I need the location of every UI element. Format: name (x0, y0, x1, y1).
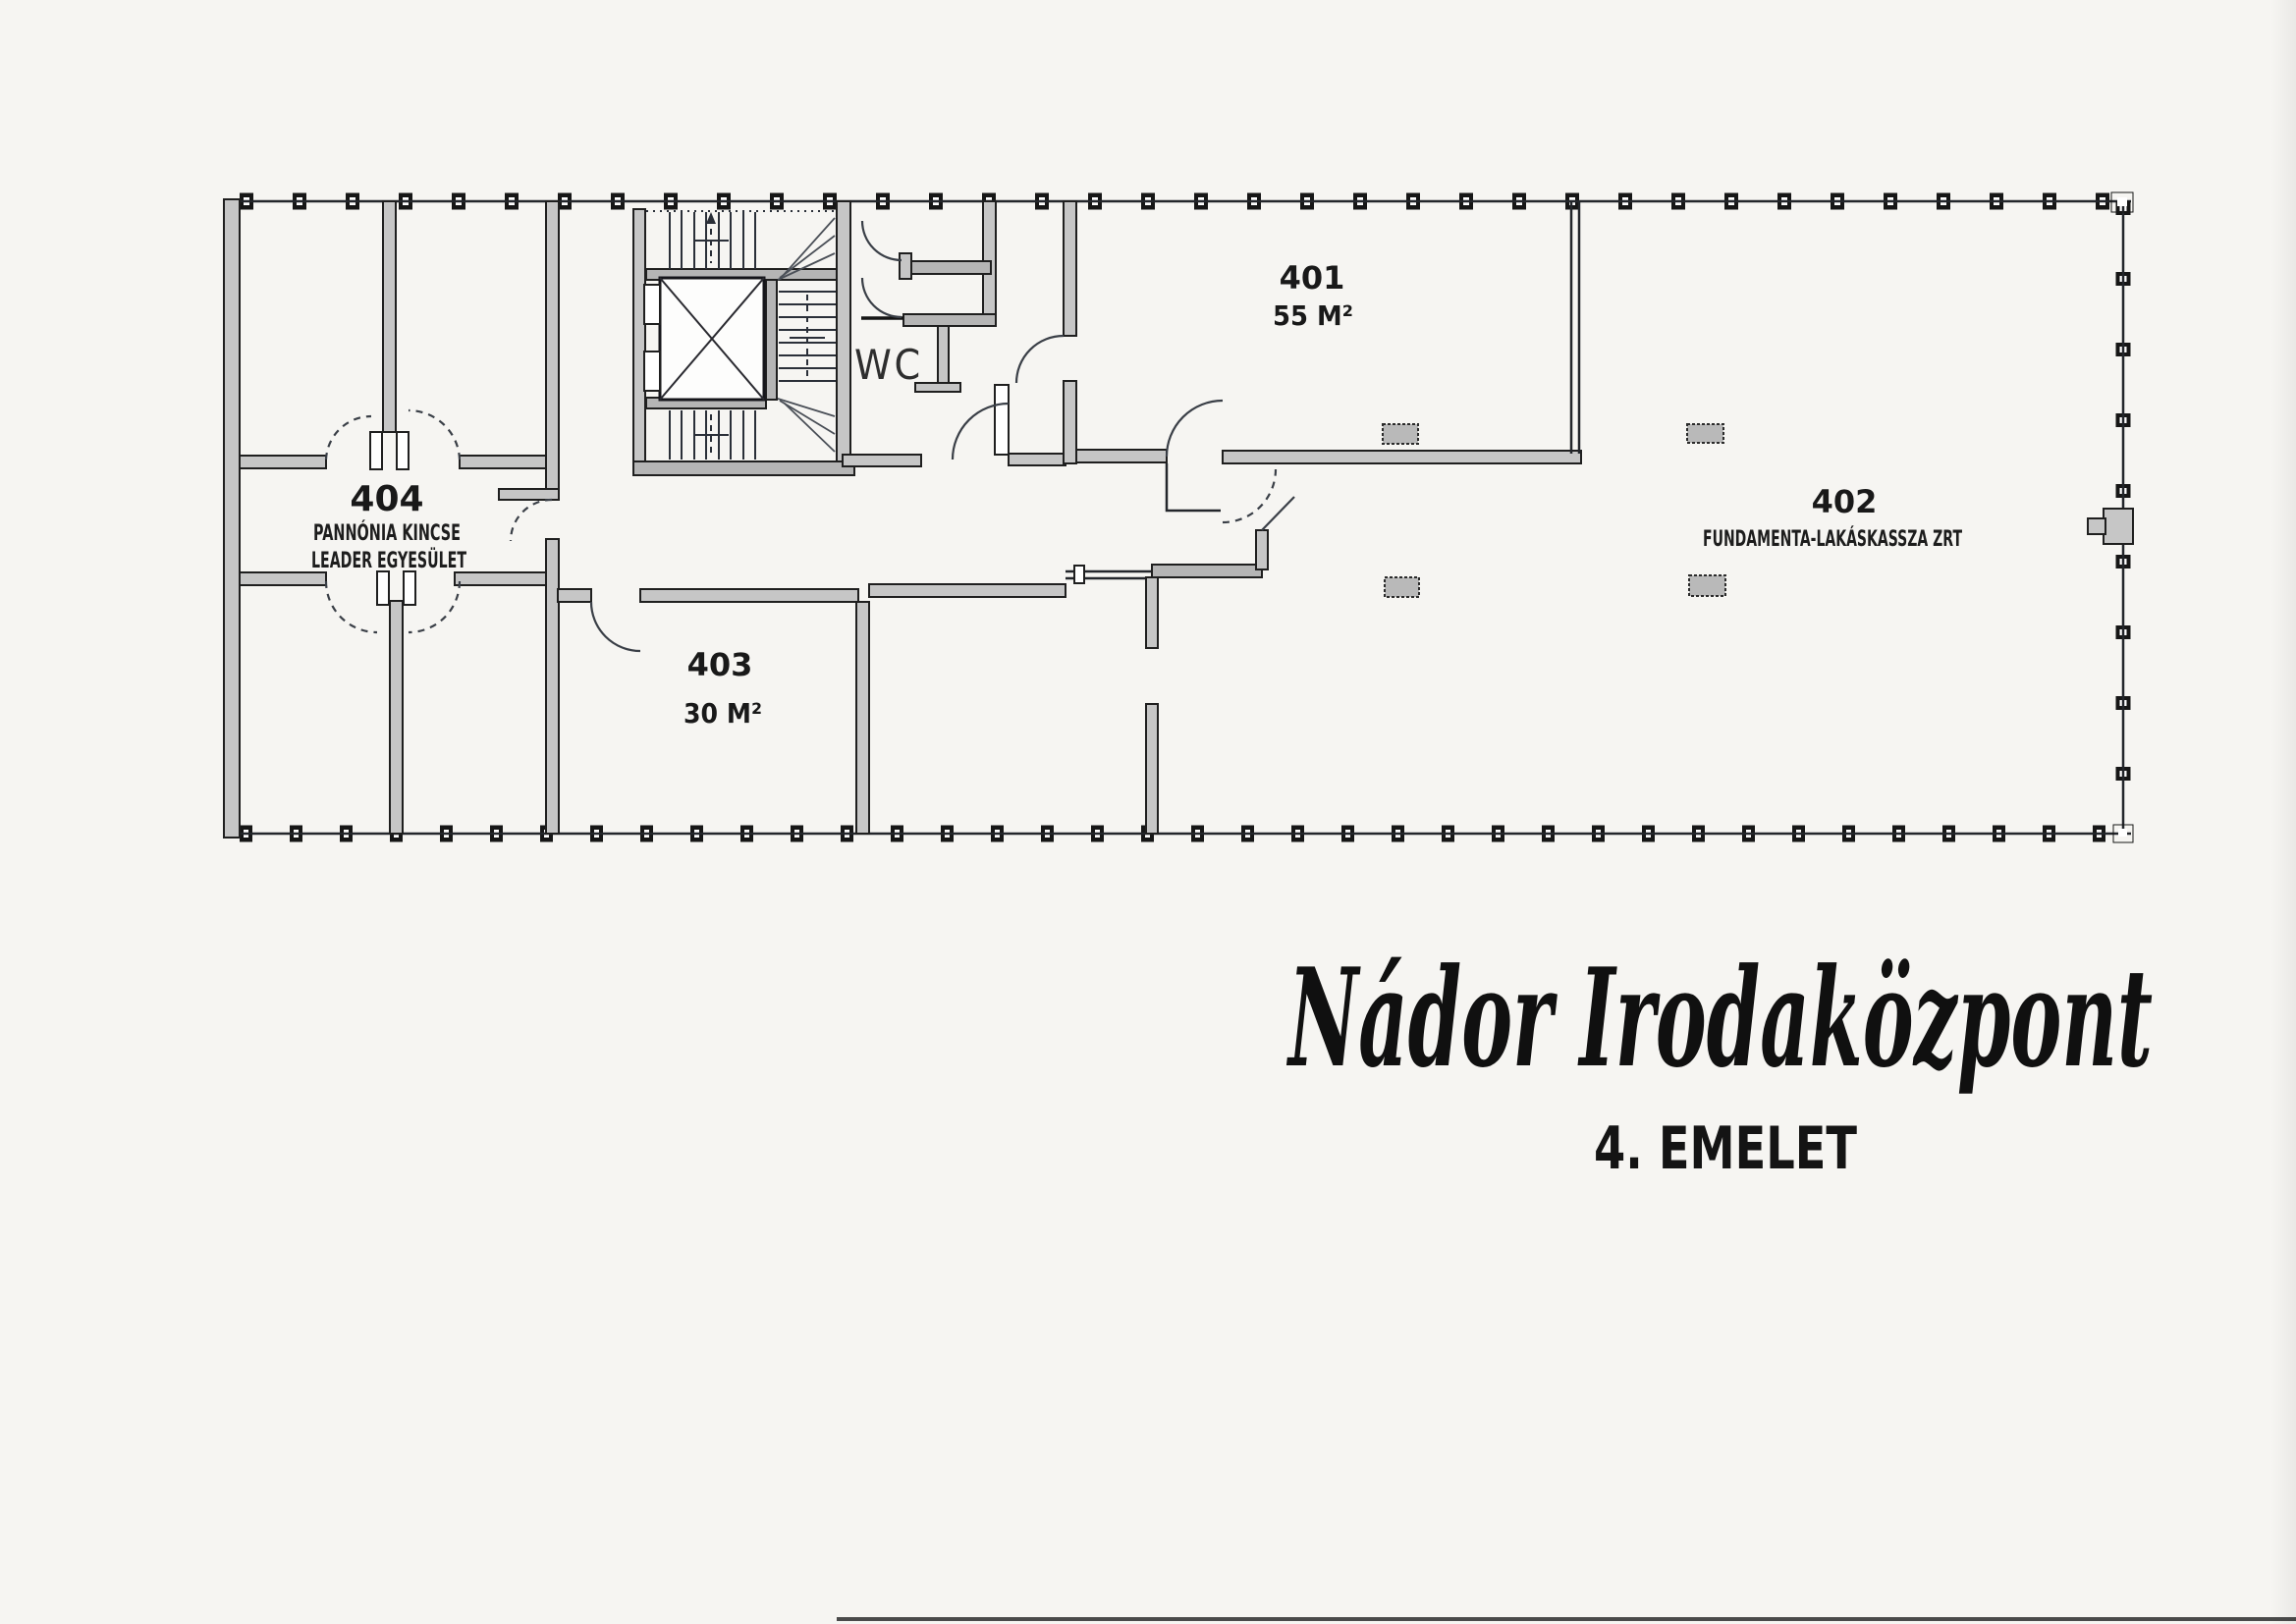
stair-west-wall (633, 209, 645, 463)
room-404-label: 404 PANNÓNIA KINCSE LEADER EGYESÜLET (311, 479, 466, 573)
stair-direction-arrow (706, 212, 716, 224)
wc-zone: WC (843, 201, 1066, 466)
room-403-label: 403 30 M² (683, 646, 762, 730)
wc-label: WC (854, 341, 923, 389)
door-arc-404-upper-left (326, 416, 371, 460)
building-title: Nádor Irodaközpont (1286, 938, 2153, 1098)
stair-south-wall (633, 461, 854, 475)
door-recess-401 (1167, 463, 1221, 511)
wall-bottom-room-divider (390, 601, 403, 834)
room-404-tenant-line2: LEADER EGYESÜLET (311, 548, 466, 573)
room-402-number: 402 (1812, 483, 1878, 520)
room-401-label: 401 55 M² (1273, 259, 1353, 332)
stair-flight-right (779, 292, 836, 381)
door-arc-404-upper-right (409, 410, 460, 460)
scanned-floor-plan-page: WC 404 PANNÓNIA K (0, 0, 2296, 1624)
stair-winder-fans (778, 218, 835, 452)
stair-east-wall (837, 201, 850, 463)
room-401-south-wall-west (1076, 450, 1167, 462)
wall-east-room-divider-upper (1146, 577, 1158, 648)
corridor-south-walls (558, 497, 1294, 834)
room-402-tenant: FUNDAMENTA-LAKÁSKASSZA ZRT (1703, 526, 1962, 552)
room-401-area: 55 M² (1273, 299, 1353, 332)
door-arc-401-west (1016, 336, 1064, 383)
room-404-number: 404 (350, 479, 423, 519)
stair-flight-bottom (670, 410, 755, 460)
stair-flight-top (670, 212, 755, 269)
door-arc-404-lower-left (326, 581, 377, 632)
door-arc-wc-anteroom (862, 221, 902, 260)
wall-top-room-divider (383, 201, 396, 432)
room-404-tenant-line1: PANNÓNIA KINCSE (313, 520, 461, 546)
room-403-number: 403 (687, 646, 753, 683)
room-402-label: 402 FUNDAMENTA-LAKÁSKASSZA ZRT (1703, 483, 1962, 552)
room-403-area: 30 M² (683, 697, 762, 730)
floor-plan-drawing: WC 404 PANNÓNIA K (0, 0, 2296, 1624)
wall-403-east (856, 602, 869, 834)
elevator-shaft (644, 278, 764, 400)
room-401-south-wall-east (1223, 451, 1581, 463)
wall-east-room-divider-lower (1146, 704, 1158, 834)
room-401-walls (1016, 201, 1581, 522)
door-arc-corridor-west (511, 500, 552, 541)
door-leaf-corridor-east (1262, 497, 1294, 530)
door-arc-corridor-401 (1223, 469, 1276, 522)
room-401-west-wall (1064, 201, 1076, 336)
door-arc-wc-cabin (862, 278, 902, 317)
stairwell-core (633, 201, 854, 475)
corridor-west-wall (499, 201, 559, 834)
room-401-number: 401 (1280, 259, 1345, 297)
floor-title: 4. EMELET (1594, 1114, 1857, 1183)
door-arc-403 (591, 602, 640, 651)
right-wall-connector (2088, 509, 2133, 544)
elevator-door-jamb-lower (644, 352, 660, 391)
outer-wall-left (224, 199, 240, 838)
outer-facade-right (2088, 192, 2133, 842)
door-arc-401-entry (1167, 401, 1223, 457)
elevator-door-jamb-upper (644, 285, 660, 324)
